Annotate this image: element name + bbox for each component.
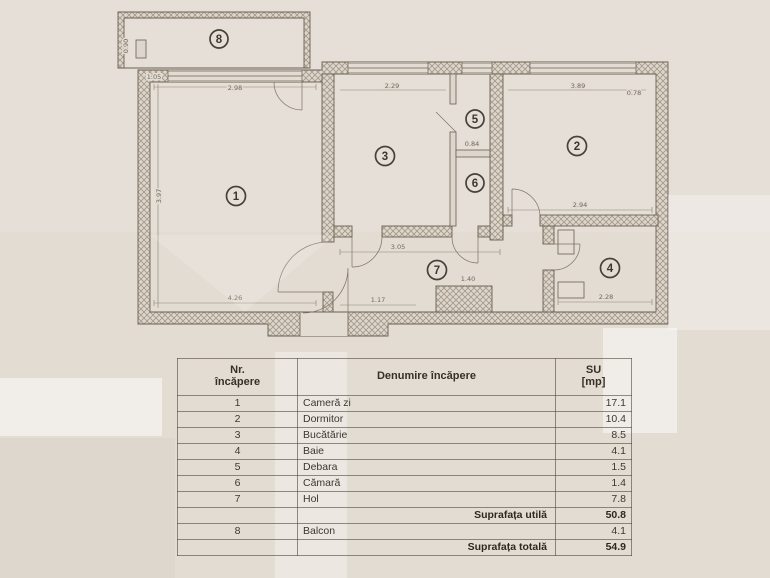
table-row-usable-total: Suprafața utilă 50.8 xyxy=(178,508,632,524)
usable-area-value: 50.8 xyxy=(556,508,632,524)
room-nr: 6 xyxy=(178,476,298,492)
dim-label: 2.29 xyxy=(385,82,399,90)
dim-label: 1.40 xyxy=(461,275,475,283)
room-name: Balcon xyxy=(298,524,556,540)
header-nr-line2: încăpere xyxy=(215,376,260,388)
table-row: 6 Cămară 1.4 xyxy=(178,476,632,492)
room-badge-storage1: 5 xyxy=(466,110,484,128)
room-area: 1.5 xyxy=(556,460,632,476)
scan-dark-band xyxy=(0,438,175,578)
svg-text:8: 8 xyxy=(216,34,223,46)
dim-label: 2.94 xyxy=(573,201,587,209)
hall-closet xyxy=(436,286,492,312)
room-badge-storage2: 6 xyxy=(466,174,484,192)
room-name: Debara xyxy=(298,460,556,476)
usable-area-label: Suprafața utilă xyxy=(298,508,556,524)
room-area: 1.4 xyxy=(556,476,632,492)
bath-fixture xyxy=(558,230,574,254)
table-row: 4 Baie 4.1 xyxy=(178,444,632,460)
area-table: Nr. încăpere Denumire încăpere SU [mp] 1… xyxy=(177,358,632,556)
dim-label: 2.28 xyxy=(599,293,613,301)
room-nr xyxy=(178,540,298,556)
total-area-value: 54.9 xyxy=(556,540,632,556)
room-area: 4.1 xyxy=(556,444,632,460)
scan-light-band xyxy=(0,378,162,436)
dim-label: 3.05 xyxy=(391,243,405,251)
room-name: Baie xyxy=(298,444,556,460)
door-arcs xyxy=(274,82,580,313)
balcony-walls xyxy=(118,12,310,68)
dim-label: 3.89 xyxy=(571,82,585,90)
room-nr: 3 xyxy=(178,428,298,444)
window-symbols xyxy=(168,62,636,82)
header-su-line1: SU xyxy=(586,364,601,376)
room-name: Cămară xyxy=(298,476,556,492)
scanned-floorplan-page: 2.98 3.97 4.26 2.29 3.89 0.78 2.94 2.28 … xyxy=(0,0,770,578)
header-su-line2: [mp] xyxy=(582,376,606,388)
svg-text:5: 5 xyxy=(472,114,479,126)
room-nr: 4 xyxy=(178,444,298,460)
table-row: 2 Dormitor 10.4 xyxy=(178,412,632,428)
room-area: 8.5 xyxy=(556,428,632,444)
window-small xyxy=(462,62,492,74)
entrance-opening xyxy=(300,313,348,337)
window-bedroom xyxy=(530,62,636,74)
table-row: 7 Hol 7.8 xyxy=(178,492,632,508)
dim-label: 2.98 xyxy=(228,84,242,92)
table-header-row: Nr. încăpere Denumire încăpere SU [mp] xyxy=(178,359,632,396)
table-row: 8 Balcon 4.1 xyxy=(178,524,632,540)
room-name: Hol xyxy=(298,492,556,508)
room-area: 7.8 xyxy=(556,492,632,508)
room-area: 10.4 xyxy=(556,412,632,428)
outer-walls xyxy=(138,62,668,336)
table-row-grand-total: Suprafața totală 54.9 xyxy=(178,540,632,556)
room-nr: 7 xyxy=(178,492,298,508)
dim-label: 0.90 xyxy=(122,39,130,53)
room-nr: 1 xyxy=(178,396,298,412)
table-row: 5 Debara 1.5 xyxy=(178,460,632,476)
balcony-fixture xyxy=(136,40,146,58)
room-badge-hall: 7 xyxy=(428,261,447,280)
svg-text:6: 6 xyxy=(472,178,478,190)
svg-text:1: 1 xyxy=(233,191,240,203)
dim-label: 3.97 xyxy=(155,189,163,203)
room-badge-bath: 4 xyxy=(601,259,620,278)
room-name: Cameră zi xyxy=(298,396,556,412)
header-name: Denumire încăpere xyxy=(298,359,556,396)
room-name: Dormitor xyxy=(298,412,556,428)
room-area: 4.1 xyxy=(556,524,632,540)
scan-light-patch xyxy=(150,235,334,312)
room-badge-balcony: 8 xyxy=(210,30,228,48)
table-row: 3 Bucătărie 8.5 xyxy=(178,428,632,444)
room-nr: 8 xyxy=(178,524,298,540)
bath-fixture xyxy=(558,282,584,298)
room-nr xyxy=(178,508,298,524)
svg-text:7: 7 xyxy=(434,265,440,277)
dim-label: 1.17 xyxy=(371,296,385,304)
window-living-balcony xyxy=(168,70,302,82)
room-nr: 2 xyxy=(178,412,298,428)
room-name: Bucătărie xyxy=(298,428,556,444)
svg-text:2: 2 xyxy=(574,141,580,153)
table-row: 1 Cameră zi 17.1 xyxy=(178,396,632,412)
room-area: 17.1 xyxy=(556,396,632,412)
header-su: SU [mp] xyxy=(556,359,632,396)
window-kitchen xyxy=(348,62,428,74)
svg-text:4: 4 xyxy=(607,263,614,275)
room-badge-living: 1 xyxy=(227,187,246,206)
dim-label: 0.78 xyxy=(627,89,641,97)
floor-plan: 2.98 3.97 4.26 2.29 3.89 0.78 2.94 2.28 … xyxy=(0,0,770,350)
dim-label: 0.84 xyxy=(465,140,479,148)
svg-text:3: 3 xyxy=(382,151,388,163)
dim-label: 1.05 xyxy=(147,73,161,81)
room-badge-bedroom: 2 xyxy=(568,137,587,156)
header-name-label: Denumire încăpere xyxy=(377,370,476,382)
header-nr: Nr. încăpere xyxy=(178,359,298,396)
room-badge-kitchen: 3 xyxy=(376,147,395,166)
room-nr: 5 xyxy=(178,460,298,476)
interior-walls xyxy=(322,74,658,312)
total-area-label: Suprafața totală xyxy=(298,540,556,556)
header-nr-line1: Nr. xyxy=(230,364,245,376)
